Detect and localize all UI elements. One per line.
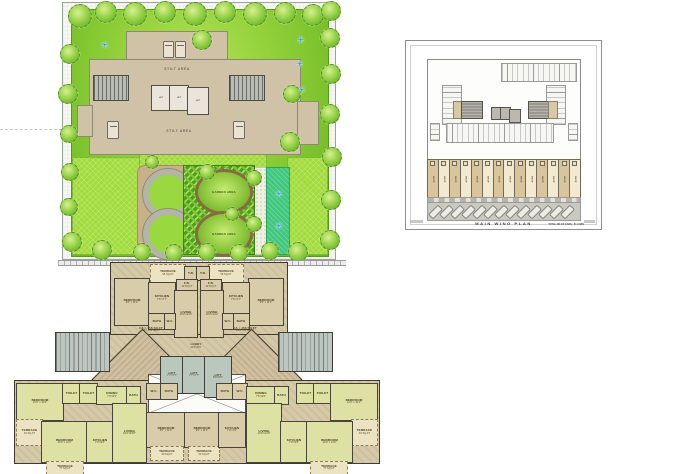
room-dims: CA = 700 SQ.FT	[236, 330, 254, 333]
room-dims: 7'0"x9'0"	[107, 396, 117, 399]
room: BEDROOM9'6" x 11'0"	[114, 278, 150, 326]
room-label: W.C.	[236, 390, 243, 393]
room-label: W.C.	[166, 320, 173, 323]
room: TERRACE40 SQ.FT	[16, 419, 43, 446]
room: KITCHEN7'0"x9'6"	[86, 421, 114, 463]
room: TERRACE77 SQ.FT	[46, 461, 84, 474]
room-label: TOILET	[83, 392, 95, 395]
room	[55, 332, 110, 372]
room: TERRACE30 SQ.FT	[188, 446, 220, 461]
room-dims: 7'0"x9'6"	[289, 442, 299, 445]
room-label: TOILET	[66, 392, 78, 395]
room-dims: 12'0" x 10'0"	[347, 402, 361, 405]
room-dims: 7'6"x9'0"	[256, 396, 266, 399]
room-dims: 10'0"x14'0"	[258, 433, 271, 436]
room-dims: 10'0"x15'6"	[123, 433, 136, 436]
room: KITCHEN7'0"x9'6"	[280, 421, 308, 463]
room: LOBBY21'0"x8'3"	[176, 340, 216, 353]
room-label: TOILET	[300, 392, 312, 395]
room-label: BATH	[237, 320, 246, 323]
room-dims: 9'6" x 11'0"	[126, 302, 139, 305]
room-dims: 9'0" x 11'0"	[196, 430, 209, 433]
room-label: BATH	[221, 390, 230, 393]
apartment-floor-plan: TERRACE95 SQ.FTTERRACE95 SQ.FTT.B.T.B.BE…	[0, 0, 700, 474]
room-label: BATH	[165, 390, 174, 393]
room: TERRACE30 SQ.FT	[150, 446, 184, 461]
room: LIVING10'0"x14'0"	[246, 403, 282, 463]
room-dims: 30 SQ.FT	[198, 454, 209, 457]
room: KITCHEN7'0"x7'0"	[218, 412, 246, 448]
room-dims: 9'0" x 11'0"	[160, 430, 173, 433]
room-label: T.B.	[188, 272, 194, 275]
room-dims: 7'6"x7'7"	[157, 299, 167, 302]
room: BEDROOM10'0" x 11'0"	[41, 421, 88, 463]
room: CA = 456 SQ.FTCA = 700 SQ.FT	[128, 325, 174, 335]
room-dims: 30 SQ.FT	[161, 454, 172, 457]
room-dims: 7'0"x7'0"	[227, 430, 237, 433]
room-dims: 7'0"x9'6"	[95, 442, 105, 445]
room: KITCHEN7'6"x7'7"	[148, 282, 176, 315]
room: LIVING10'0"x14'3"	[174, 290, 198, 338]
room-dims: 30 SQ.FT	[205, 286, 216, 289]
room-label: T.B.	[200, 272, 206, 275]
room: LIVING10'0"x14'3"	[200, 290, 224, 338]
room: TERRACE77 SQ.FT	[310, 461, 348, 474]
room: TERRACE40 SQ.FT	[351, 419, 378, 446]
room-dims: 77 SQ.FT	[59, 468, 70, 471]
room-dims: 95 SQ.FT	[162, 274, 173, 277]
room-label: TOILET	[317, 392, 329, 395]
room-dims: 8'0"x6'0"	[213, 377, 223, 380]
room-dims: 40 SQ.FT	[359, 433, 370, 436]
room	[278, 332, 333, 372]
room: BEDROOM12'0" x 10'0"	[330, 383, 378, 421]
room-label: BATH	[277, 394, 286, 397]
room-dims: 77 SQ.FT	[323, 468, 334, 471]
room: BEDROOM12'0" x 10'0"	[16, 383, 64, 421]
room-label: W.C.	[224, 320, 231, 323]
room-dims: 7'6"x7'7"	[231, 299, 241, 302]
room: BEDROOM10'0" x 11'0"	[306, 421, 353, 463]
room-dims: CA = 700 SQ.FT	[142, 330, 160, 333]
room: BEDROOM9'6" x 11'0"	[248, 278, 284, 326]
room-label: BATH	[153, 320, 162, 323]
room-dims: 21'0"x8'3"	[191, 347, 202, 350]
room-dims: 10'0"x14'3"	[206, 314, 219, 317]
room-dims: 10'0"x14'3"	[180, 314, 193, 317]
room-dims: 12'0" x 10'0"	[33, 402, 47, 405]
room-dims: 40 SQ.FT	[24, 433, 35, 436]
room: BEDROOM9'0" x 11'0"	[184, 412, 220, 448]
room: BATH	[160, 383, 178, 400]
room: LIVING10'0"x15'6"	[112, 403, 147, 463]
room-dims: 7'7"x7'7"	[189, 375, 199, 378]
room-dims: 95 SQ.FT	[220, 274, 231, 277]
room-label: W.C.	[150, 390, 157, 393]
room: LIFT7'7"x7'7"	[182, 356, 206, 394]
room-dims: 10'0" x 11'0"	[322, 442, 336, 445]
room: KITCHEN7'6"x7'7"	[222, 282, 250, 315]
room-dims: 10'0" x 11'0"	[57, 442, 71, 445]
room: BEDROOM9'0" x 11'0"	[146, 412, 186, 448]
room-dims: 30 SQ.FT	[181, 286, 192, 289]
room-label: BATH	[129, 394, 138, 397]
plans-canvas: GARDEN AREA GARDEN AREA LIFT LIFT LIFT S…	[0, 0, 700, 474]
room: CA = 456 SQ.FTCA = 700 SQ.FT	[222, 325, 268, 335]
room-dims: 9'6" x 11'0"	[260, 302, 273, 305]
room-dims: 7'7"x7'7"	[167, 375, 177, 378]
